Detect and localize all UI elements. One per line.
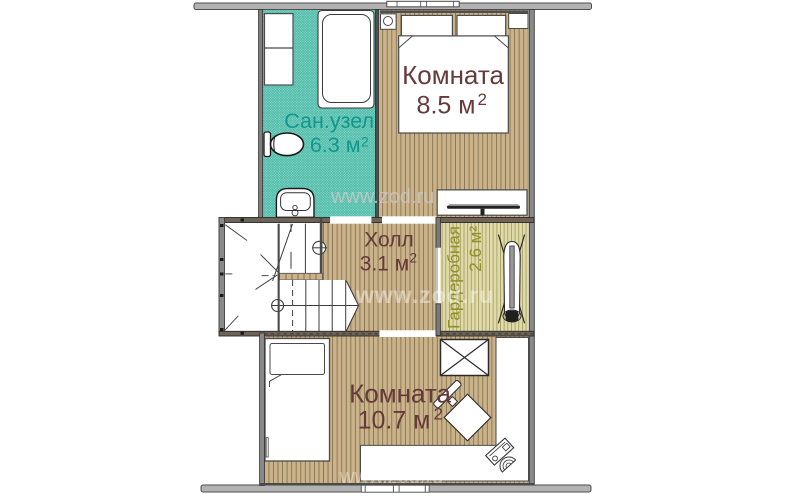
svg-text:www.zod.ru: www.zod.ru bbox=[339, 466, 443, 488]
svg-text:2.6 м²: 2.6 м² bbox=[466, 226, 485, 272]
svg-text:Комната: Комната bbox=[402, 60, 504, 90]
svg-text:2: 2 bbox=[434, 405, 443, 424]
svg-text:6.3 м: 6.3 м bbox=[310, 133, 361, 157]
svg-text:www.zod.ru: www.zod.ru bbox=[355, 282, 494, 308]
svg-text:10.7 м: 10.7 м bbox=[358, 406, 431, 434]
svg-text:2: 2 bbox=[410, 251, 418, 266]
svg-text:Сан.узел: Сан.узел bbox=[284, 109, 374, 133]
svg-text:2: 2 bbox=[361, 134, 369, 150]
svg-text:Холл: Холл bbox=[364, 228, 414, 251]
svg-text:Гардеробная: Гардеробная bbox=[445, 226, 464, 329]
svg-text:2: 2 bbox=[478, 90, 487, 109]
svg-text:www.zod.ru: www.zod.ru bbox=[330, 186, 434, 208]
svg-text:3.1 м: 3.1 м bbox=[360, 253, 409, 276]
svg-text:8.5 м: 8.5 м bbox=[417, 92, 476, 120]
